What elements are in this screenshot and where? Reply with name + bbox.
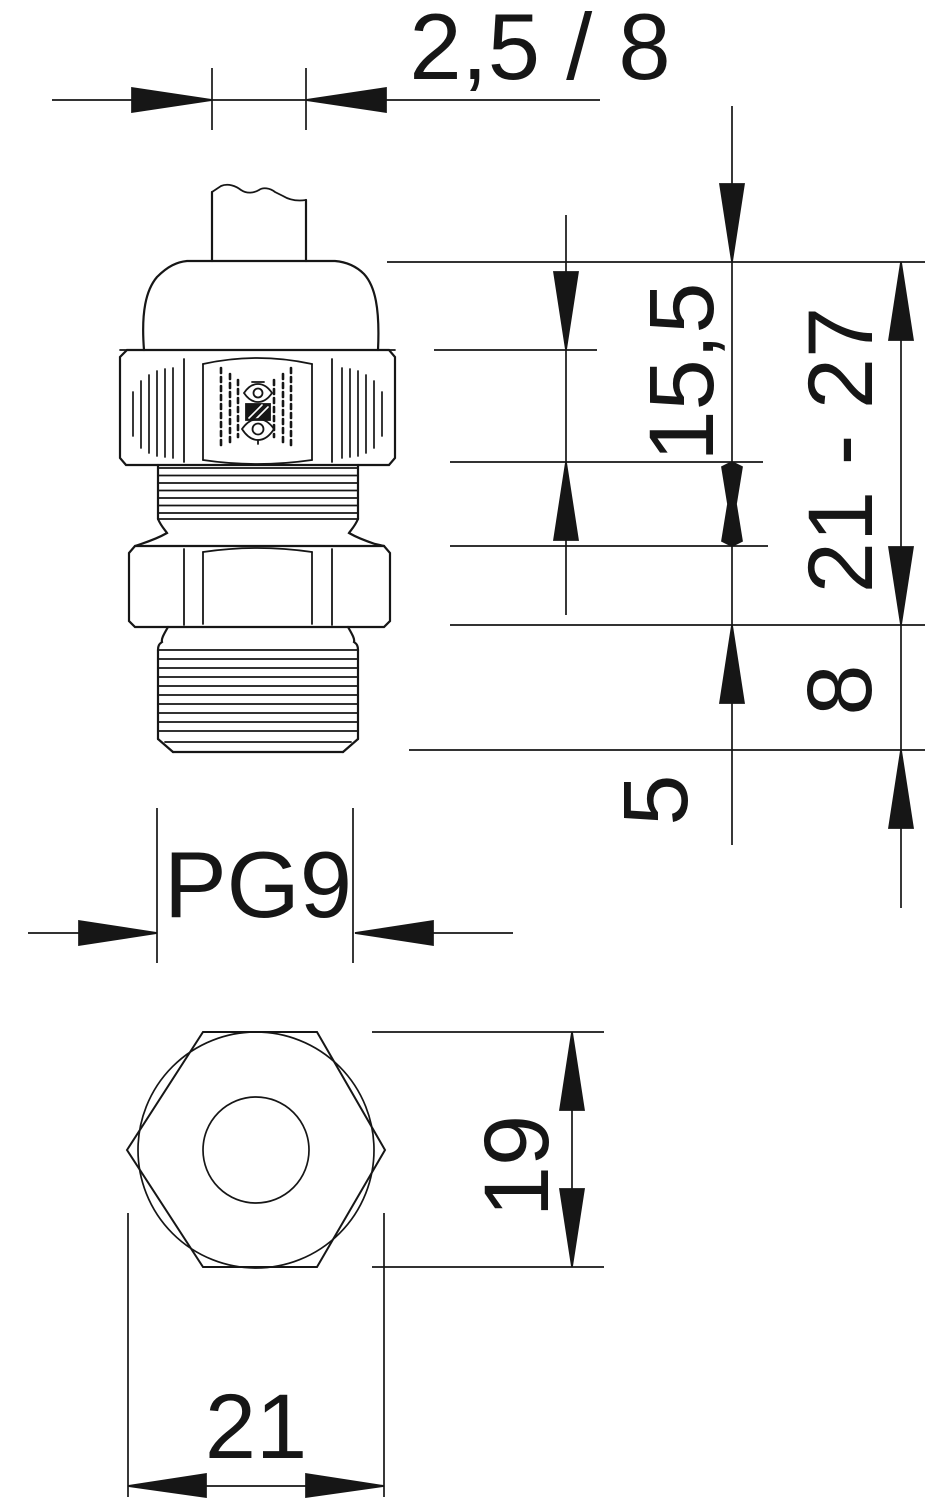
bore-circle [203, 1097, 309, 1203]
cable [212, 185, 306, 261]
rib-section [135, 465, 384, 546]
label-across-corners: 21 [205, 1376, 307, 1478]
approval-eye-top-icon [244, 384, 272, 402]
hex-nut [120, 350, 395, 465]
label-across-flats: 19 [466, 1115, 568, 1217]
cert-marks [242, 382, 274, 444]
arrow-up-icon [560, 1032, 584, 1110]
arrow-up-icon [554, 462, 578, 540]
neck-left [158, 627, 168, 650]
approval-eye-bottom-dot-icon [253, 424, 264, 435]
dim-line-c [889, 262, 913, 908]
arrow-left-icon [355, 921, 433, 945]
knurl-left [133, 368, 173, 458]
dimension-lines [28, 68, 925, 1497]
waist-left [135, 519, 167, 546]
arrow-right-icon [79, 921, 157, 945]
cap-dome [143, 261, 378, 350]
dim-line-a [554, 215, 578, 615]
dim-line-b [720, 106, 744, 845]
chamfer-circle [138, 1032, 374, 1268]
thread-lines [158, 650, 358, 742]
label-thread-length: 8 [789, 664, 891, 715]
arrow-down-icon [720, 184, 744, 262]
dimension-labels: 2,5 / 8 15,5 21 - 27 8 5 PG9 19 21 [164, 0, 892, 1478]
arrow-down-icon [889, 547, 913, 625]
knurl-right [342, 368, 382, 458]
arrow-left-icon [128, 1474, 206, 1497]
neck-right [348, 627, 358, 650]
label-below-thread: 5 [605, 774, 707, 825]
arrow-up-icon [720, 625, 744, 703]
approval-eye-top-dot-icon [254, 389, 263, 398]
waist-right [349, 519, 384, 546]
side-view [120, 185, 395, 752]
arrow-down-icon [554, 272, 578, 350]
label-cable-range: 2,5 / 8 [409, 0, 670, 99]
mid-hex-facet-lines [184, 548, 332, 625]
arrow-left-icon [306, 88, 386, 112]
arrow-right-icon [132, 88, 212, 112]
bottom-view [127, 1032, 385, 1268]
arrow-right-icon [306, 1474, 384, 1497]
arrow-up-icon [889, 750, 913, 828]
label-upper-height: 15,5 [631, 282, 733, 461]
arrow-up-icon [889, 262, 913, 340]
squeezed-arrows-icon [722, 462, 742, 546]
thread-section [158, 627, 358, 752]
hexagon-outline [127, 1032, 385, 1267]
cable-gland-drawing: 2,5 / 8 15,5 21 - 27 8 5 PG9 19 21 [0, 0, 928, 1498]
technical-drawing-page: 2,5 / 8 15,5 21 - 27 8 5 PG9 19 21 [0, 0, 928, 1498]
approval-eye-bottom-icon [242, 419, 274, 440]
mid-hex [129, 546, 390, 627]
label-thread-size: PG9 [164, 832, 352, 937]
label-overall-height: 21 - 27 [790, 307, 892, 593]
